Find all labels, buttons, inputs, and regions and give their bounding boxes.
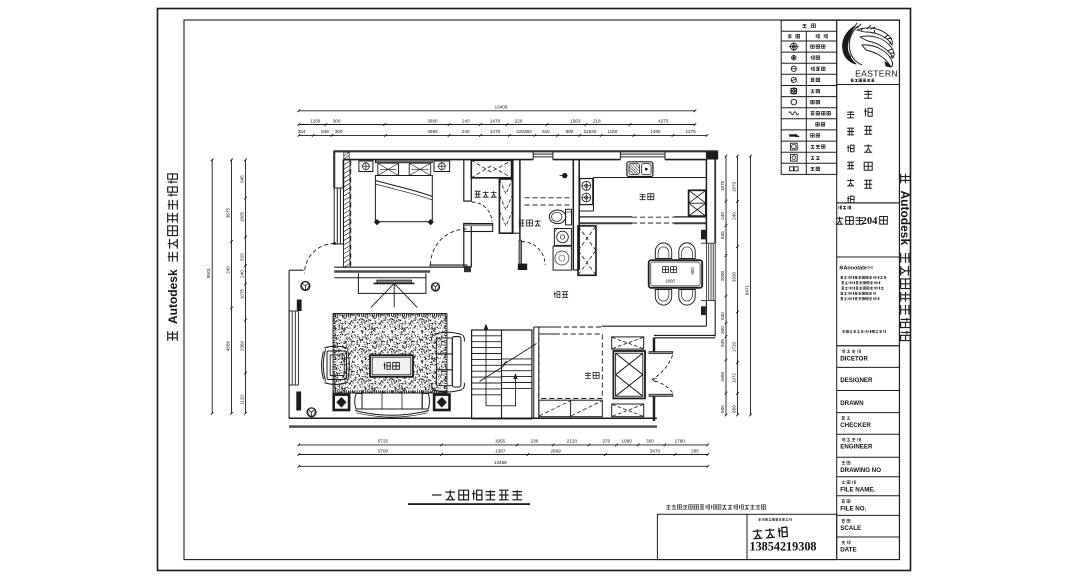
svg-text:220360: 220360 (516, 129, 532, 134)
svg-text:5725: 5725 (378, 439, 389, 444)
svg-text:13458: 13458 (494, 460, 507, 465)
svg-text:2360: 2360 (240, 340, 245, 351)
svg-text:1072: 1072 (732, 372, 737, 383)
svg-text:240: 240 (720, 212, 725, 220)
svg-text:270: 270 (602, 439, 610, 444)
svg-text:DRAWING NO: DRAWING NO (840, 467, 881, 474)
svg-text:SCALE: SCALE (840, 525, 861, 532)
svg-text:5700: 5700 (378, 448, 389, 453)
svg-text:13409: 13409 (495, 105, 508, 110)
svg-text:3960: 3960 (427, 118, 438, 123)
svg-text:240: 240 (240, 270, 245, 278)
svg-text:354: 354 (298, 129, 306, 134)
svg-text:3960: 3960 (427, 129, 438, 134)
svg-text:848: 848 (321, 129, 329, 134)
svg-text:1780: 1780 (675, 439, 686, 444)
svg-text:1800: 1800 (665, 279, 675, 284)
svg-text:2120: 2120 (567, 439, 578, 444)
svg-text:240: 240 (462, 129, 470, 134)
svg-text:1470: 1470 (490, 118, 501, 123)
svg-text:1560: 1560 (720, 371, 725, 382)
svg-text:300: 300 (720, 326, 725, 334)
svg-text:3675: 3675 (226, 207, 231, 218)
svg-text:300: 300 (646, 439, 654, 444)
svg-text:1090: 1090 (621, 439, 632, 444)
svg-text:630: 630 (720, 312, 725, 320)
svg-text:610: 610 (542, 129, 550, 134)
svg-text:4585: 4585 (226, 340, 231, 351)
svg-text:EASTERN: EASTERN (855, 69, 898, 79)
svg-text:ENGINEER: ENGINEER (840, 444, 873, 451)
svg-text:204: 204 (862, 216, 879, 227)
svg-text:945: 945 (240, 175, 245, 183)
svg-text:1805: 1805 (240, 211, 245, 222)
svg-text:218: 218 (593, 118, 601, 123)
svg-text:1720: 1720 (732, 341, 737, 352)
svg-text:FILE NO.: FILE NO. (840, 505, 866, 512)
svg-text:1160: 1160 (607, 129, 617, 134)
svg-text:825: 825 (240, 253, 245, 261)
svg-text:300: 300 (335, 129, 343, 134)
svg-text:1563: 1563 (570, 118, 581, 123)
svg-text:545: 545 (720, 339, 725, 347)
svg-text:240: 240 (732, 212, 737, 220)
svg-text:236: 236 (531, 439, 539, 444)
svg-text:220: 220 (515, 118, 523, 123)
svg-text:1875: 1875 (720, 180, 725, 191)
svg-text:900: 900 (690, 267, 695, 275)
svg-text:3470: 3470 (650, 448, 661, 453)
svg-text:240: 240 (462, 118, 470, 123)
svg-text:DICETOR: DICETOR (840, 355, 868, 362)
svg-text:DRAWN: DRAWN (840, 400, 864, 407)
svg-text:FILE NAME.: FILE NAME. (840, 486, 875, 493)
svg-text:8471: 8471 (745, 284, 750, 295)
svg-text:850: 850 (732, 405, 737, 413)
svg-text:8501: 8501 (206, 267, 211, 278)
svg-text:2090: 2090 (720, 270, 725, 281)
svg-text:Autodesk: Autodesk (898, 190, 912, 245)
svg-text:Autodesk: Autodesk (166, 269, 180, 324)
svg-text:240: 240 (226, 266, 231, 274)
svg-text:635: 635 (720, 231, 725, 239)
svg-text:13854219308: 13854219308 (749, 540, 816, 554)
svg-text:21845: 21845 (584, 129, 597, 134)
svg-text:1375: 1375 (685, 129, 696, 134)
svg-text:※Annotate≡≡: ※Annotate≡≡ (839, 265, 873, 272)
svg-text:1873: 1873 (732, 181, 737, 192)
svg-text:CHECKER: CHECKER (840, 422, 871, 429)
svg-text:600: 600 (566, 129, 574, 134)
svg-text:1387: 1387 (495, 448, 506, 453)
svg-text:1075: 1075 (240, 288, 245, 299)
svg-text:285: 285 (691, 448, 699, 453)
svg-text:1470: 1470 (490, 129, 501, 134)
svg-text:4275: 4275 (658, 118, 669, 123)
svg-text:600: 600 (720, 405, 725, 413)
svg-text:300: 300 (333, 118, 341, 123)
svg-text:1200: 1200 (310, 118, 321, 123)
svg-text:1495: 1495 (650, 129, 661, 134)
svg-text:DATE: DATE (840, 547, 856, 554)
svg-text:2899: 2899 (550, 448, 561, 453)
svg-text:3330: 3330 (732, 271, 737, 282)
svg-text:DESIGNER: DESIGNER (840, 377, 873, 384)
svg-text:1955: 1955 (495, 439, 506, 444)
svg-text:1120: 1120 (240, 395, 245, 405)
